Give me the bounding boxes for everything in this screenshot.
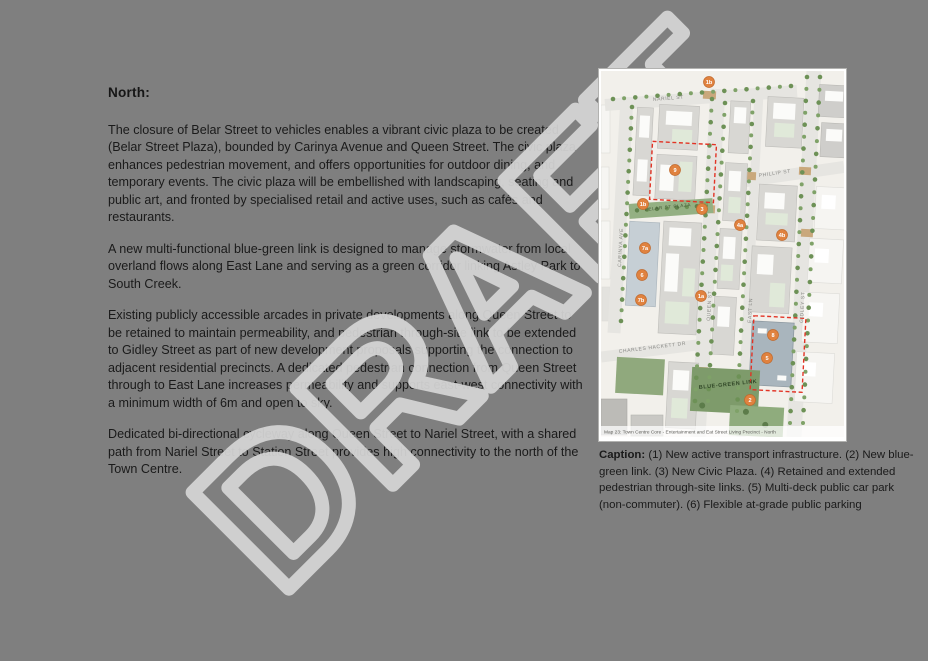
figure-caption-strip: Map 23: Town Centre Core - Entertainment… bbox=[601, 426, 844, 437]
svg-text:8: 8 bbox=[771, 333, 774, 339]
marker-1b-plaza: 1b bbox=[638, 199, 649, 210]
marker-7a: 7a bbox=[640, 243, 651, 254]
marker-1b-top: 1b bbox=[704, 77, 715, 88]
caption-label: Caption: bbox=[599, 449, 645, 461]
marker-5: 5 bbox=[762, 353, 773, 364]
marker-4b: 4b bbox=[777, 230, 788, 241]
figure-caption-text: Map 23: Town Centre Core - Entertainment… bbox=[604, 430, 776, 436]
svg-text:9: 9 bbox=[673, 168, 676, 174]
svg-text:5: 5 bbox=[765, 356, 768, 362]
svg-text:7a: 7a bbox=[642, 246, 649, 252]
marker-8: 8 bbox=[768, 330, 779, 341]
at-grade-parking-area bbox=[625, 221, 659, 306]
map-caption: Caption: (1) New active transport infras… bbox=[599, 447, 921, 513]
paragraph-arcades: Existing publicly accessible arcades in … bbox=[108, 307, 586, 412]
caption-text: (1) New active transport infrastructure.… bbox=[599, 449, 914, 511]
svg-text:1b: 1b bbox=[640, 202, 647, 208]
section-heading: North: bbox=[108, 84, 586, 102]
svg-text:6: 6 bbox=[640, 273, 643, 279]
marker-7b: 7b bbox=[636, 295, 647, 306]
svg-text:1b: 1b bbox=[706, 80, 713, 86]
svg-text:7b: 7b bbox=[638, 298, 645, 304]
site-plan-map: NARIEL ST PHILLIP ST CARINYA AVE QUEEN S… bbox=[598, 68, 847, 442]
paragraph-blue-green-link: A new multi-functional blue-green link i… bbox=[108, 241, 586, 294]
paragraph-cycleway: Dedicated bi-directional cycleway along … bbox=[108, 426, 586, 479]
svg-text:4a: 4a bbox=[737, 223, 744, 229]
svg-text:2: 2 bbox=[748, 398, 751, 404]
svg-text:3: 3 bbox=[700, 207, 703, 213]
park-green bbox=[615, 357, 665, 395]
marker-3: 3 bbox=[697, 204, 708, 215]
svg-text:4b: 4b bbox=[779, 233, 786, 239]
marker-1a: 1a bbox=[696, 291, 707, 302]
marker-9: 9 bbox=[670, 165, 681, 176]
document-page: North: The closure of Belar Street to ve… bbox=[0, 0, 928, 656]
paragraph-civic-plaza: The closure of Belar Street to vehicles … bbox=[108, 122, 586, 227]
svg-text:1a: 1a bbox=[698, 294, 705, 300]
marker-2: 2 bbox=[745, 395, 756, 406]
article-text: North: The closure of Belar Street to ve… bbox=[108, 84, 586, 493]
marker-4a: 4a bbox=[735, 220, 746, 231]
marker-6: 6 bbox=[637, 270, 648, 281]
